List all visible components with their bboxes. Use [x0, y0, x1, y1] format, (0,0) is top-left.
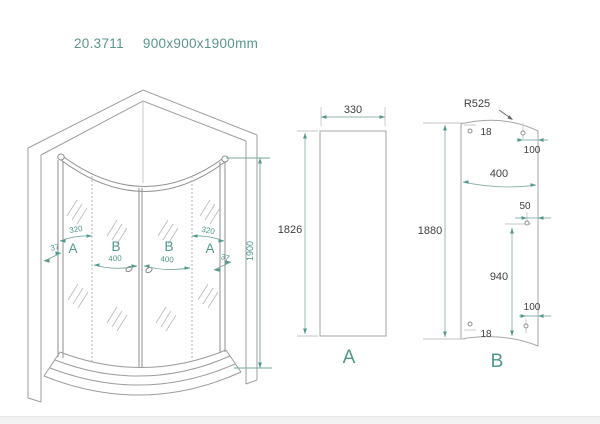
panel-b-bottom-right-hole-dim: 100 [524, 302, 541, 313]
dim-320-left: 320 [69, 224, 84, 235]
panel-a-height-dim: 1826 [278, 224, 302, 236]
glass-hatch [67, 200, 220, 331]
product-dimensions: 900x900x1900mm [143, 36, 258, 51]
dim-37-left: 37 [49, 242, 60, 253]
technical-drawing-page: 20.3711 900x900x1900mm [0, 0, 600, 424]
enclosure-frame [58, 154, 228, 367]
panel-b-height-dim: 1880 [418, 225, 442, 237]
iso-dimension-lines [44, 158, 272, 368]
panel-b-radius-dim: R525 [464, 98, 490, 110]
panel-b-mid-hole-dim: 50 [519, 201, 531, 212]
iso-shower-drawing: 37 320 400 400 320 37 1900 A B B A [20, 80, 290, 410]
panel-b-bottom-hole-dim: 18 [480, 329, 492, 340]
panel-a-glass [320, 131, 386, 336]
panel-a-label: A [343, 347, 356, 368]
panel-label-a-right: A [205, 241, 214, 256]
panel-b-width-dim: 400 [490, 168, 508, 180]
dim-400-right: 400 [160, 255, 174, 265]
dim-400-left: 400 [108, 254, 122, 264]
dim-1900: 1900 [245, 241, 255, 261]
panel-a-width-dim: 330 [344, 104, 362, 116]
panel-b-label: B [491, 351, 504, 372]
panel-a-drawing: 330 1826 A [270, 95, 400, 375]
panel-label-a-left: A [68, 241, 77, 256]
page-bottom-strip [0, 416, 600, 424]
panel-label-b-left: B [111, 239, 120, 254]
dim-320-right: 320 [201, 225, 216, 236]
drawing-title: 20.3711 900x900x1900mm [74, 36, 258, 51]
iso-dimension-texts: 37 320 400 400 320 37 1900 [49, 224, 255, 265]
model-number: 20.3711 [74, 36, 124, 51]
panel-b-hole-height-dim: 940 [490, 271, 508, 283]
panel-label-b-right: B [164, 239, 173, 254]
panel-b-drawing: R525 18 100 400 50 940 100 18 1880 B [415, 90, 565, 380]
panel-b-top-hole-dim: 18 [480, 127, 492, 138]
panel-b-top-right-hole-dim: 100 [524, 145, 541, 156]
dim-37-right: 37 [220, 252, 231, 263]
